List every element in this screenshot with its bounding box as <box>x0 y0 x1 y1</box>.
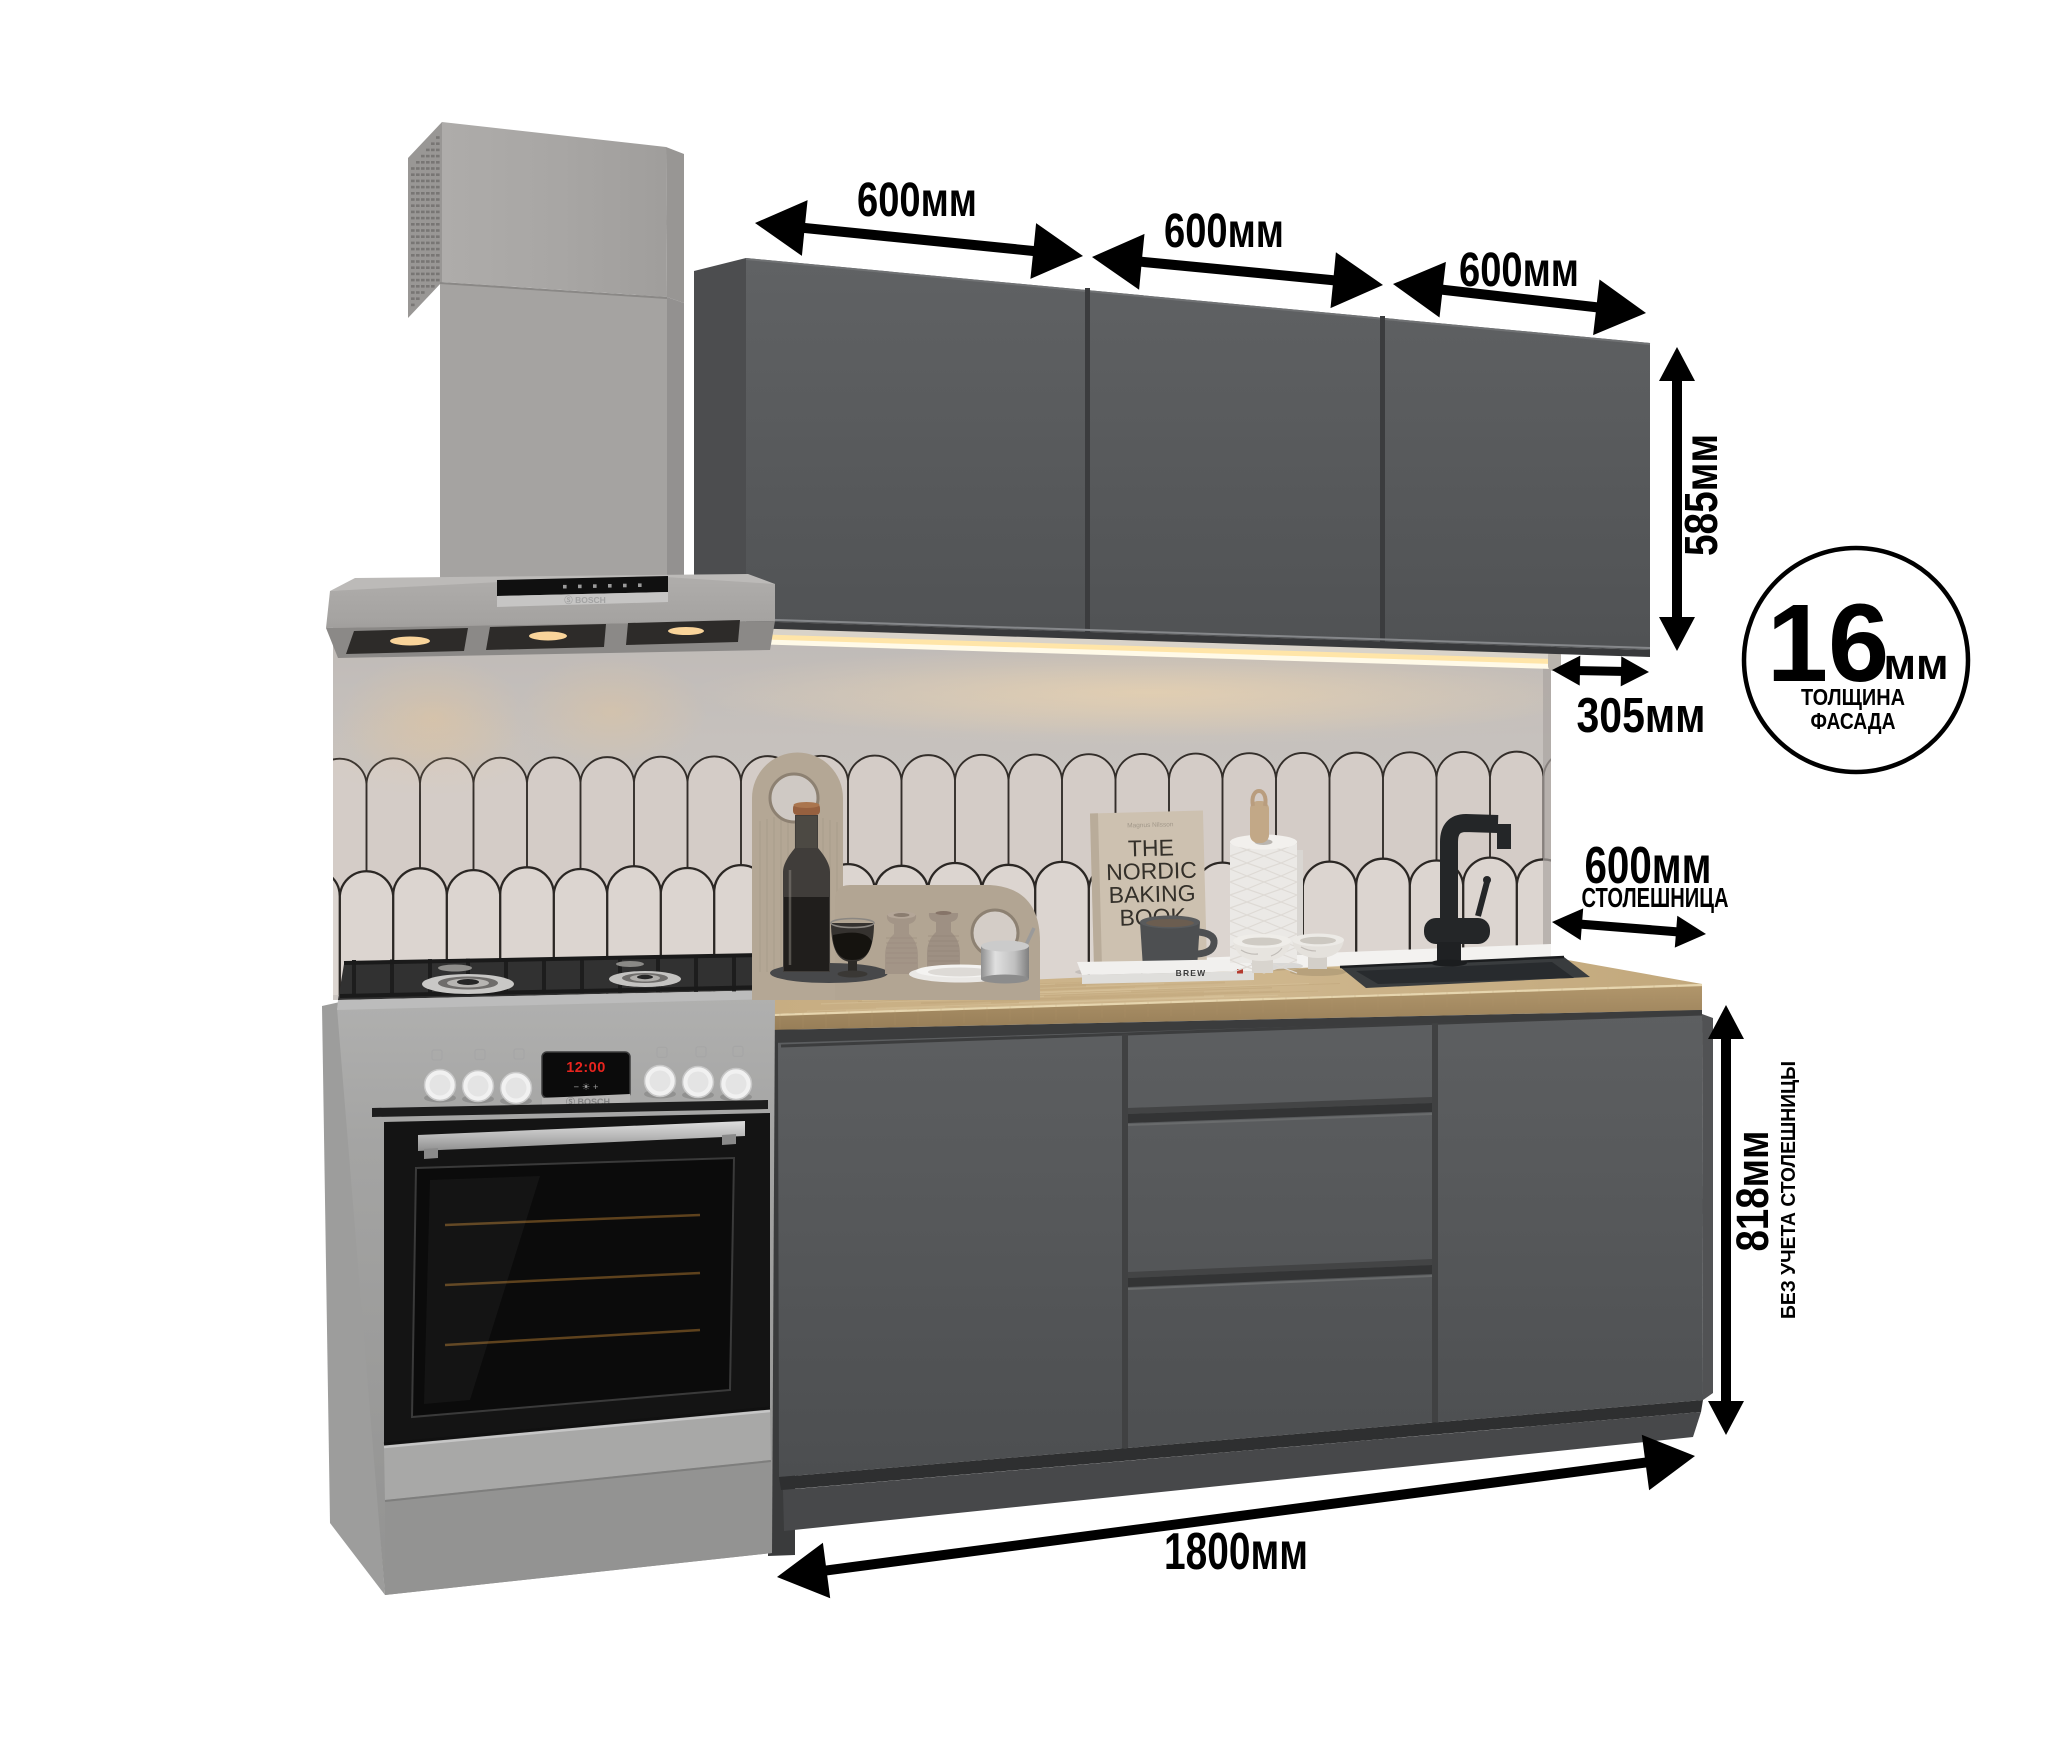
svg-text:305мм: 305мм <box>1577 689 1706 743</box>
svg-text:BREW: BREW <box>1176 968 1207 978</box>
svg-text:мм: мм <box>1883 640 1948 689</box>
svg-text:600мм: 600мм <box>1164 205 1284 258</box>
svg-text:1800мм: 1800мм <box>1164 1523 1308 1581</box>
svg-text:600мм: 600мм <box>1459 244 1579 297</box>
svg-text:СТОЛЕШНИЦА: СТОЛЕШНИЦА <box>1582 882 1729 913</box>
svg-text:ФАСАДА: ФАСАДА <box>1811 708 1896 734</box>
svg-text:585мм: 585мм <box>1675 434 1727 556</box>
svg-text:600мм: 600мм <box>857 174 977 227</box>
svg-text:Ⓢ BOSCH: Ⓢ BOSCH <box>564 595 606 605</box>
svg-text:БЕЗ УЧЕТА СТОЛЕШНИЦЫ: БЕЗ УЧЕТА СТОЛЕШНИЦЫ <box>1777 1061 1800 1319</box>
svg-text:12:00: 12:00 <box>566 1060 606 1076</box>
svg-text:ТОЛЩИНА: ТОЛЩИНА <box>1801 684 1905 710</box>
svg-text:Magnus Nilsson: Magnus Nilsson <box>1127 821 1174 829</box>
svg-text:− ☀ +: − ☀ + <box>574 1082 599 1093</box>
svg-text:818мм: 818мм <box>1727 1131 1778 1252</box>
